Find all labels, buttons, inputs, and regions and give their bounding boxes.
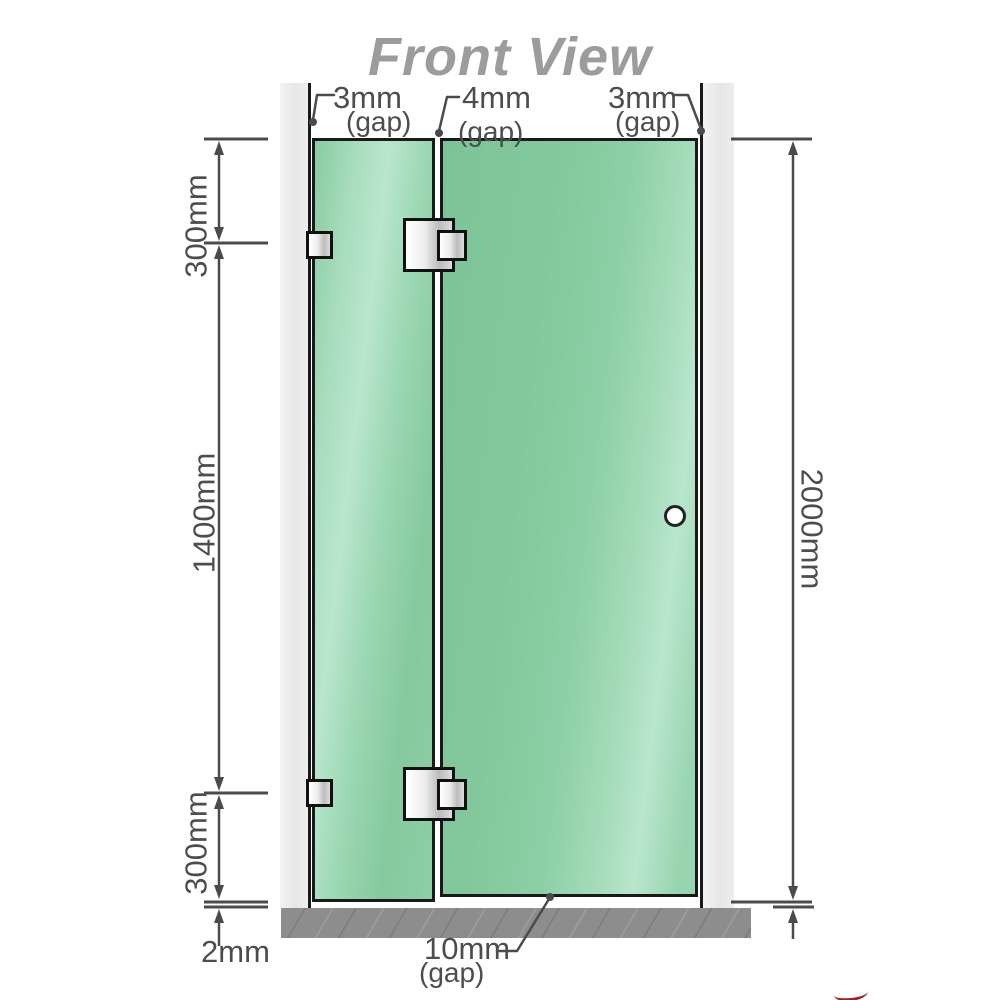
floor-base	[281, 908, 751, 938]
door-glass-panel	[440, 138, 698, 897]
logo-fragment	[834, 985, 869, 1000]
diagram-title: Front View	[330, 26, 690, 88]
gap-top-right-unit: (gap)	[615, 108, 680, 136]
dim-top-section: 300mm	[181, 174, 212, 277]
front-view-diagram: Front View	[0, 0, 1000, 1000]
bottom-hinge-door-plate	[437, 779, 467, 810]
top-hinge-door-plate	[437, 230, 467, 261]
door-knob	[664, 505, 686, 527]
dim-total-height: 2000mm	[797, 469, 828, 590]
right-wall-channel	[700, 83, 734, 908]
dim-middle-section: 1400mm	[189, 453, 220, 574]
gap-bottom-door-unit: (gap)	[419, 959, 484, 987]
top-wall-bracket	[306, 231, 333, 259]
floor-clearance-label: 2mm	[201, 936, 270, 967]
gap-top-middle-unit: (gap)	[458, 118, 523, 146]
gap-top-left-unit: (gap)	[346, 108, 411, 136]
dim-bottom-section: 300mm	[181, 791, 212, 894]
gap-top-middle-value: 4mm	[462, 82, 531, 113]
bottom-wall-bracket	[306, 779, 333, 807]
